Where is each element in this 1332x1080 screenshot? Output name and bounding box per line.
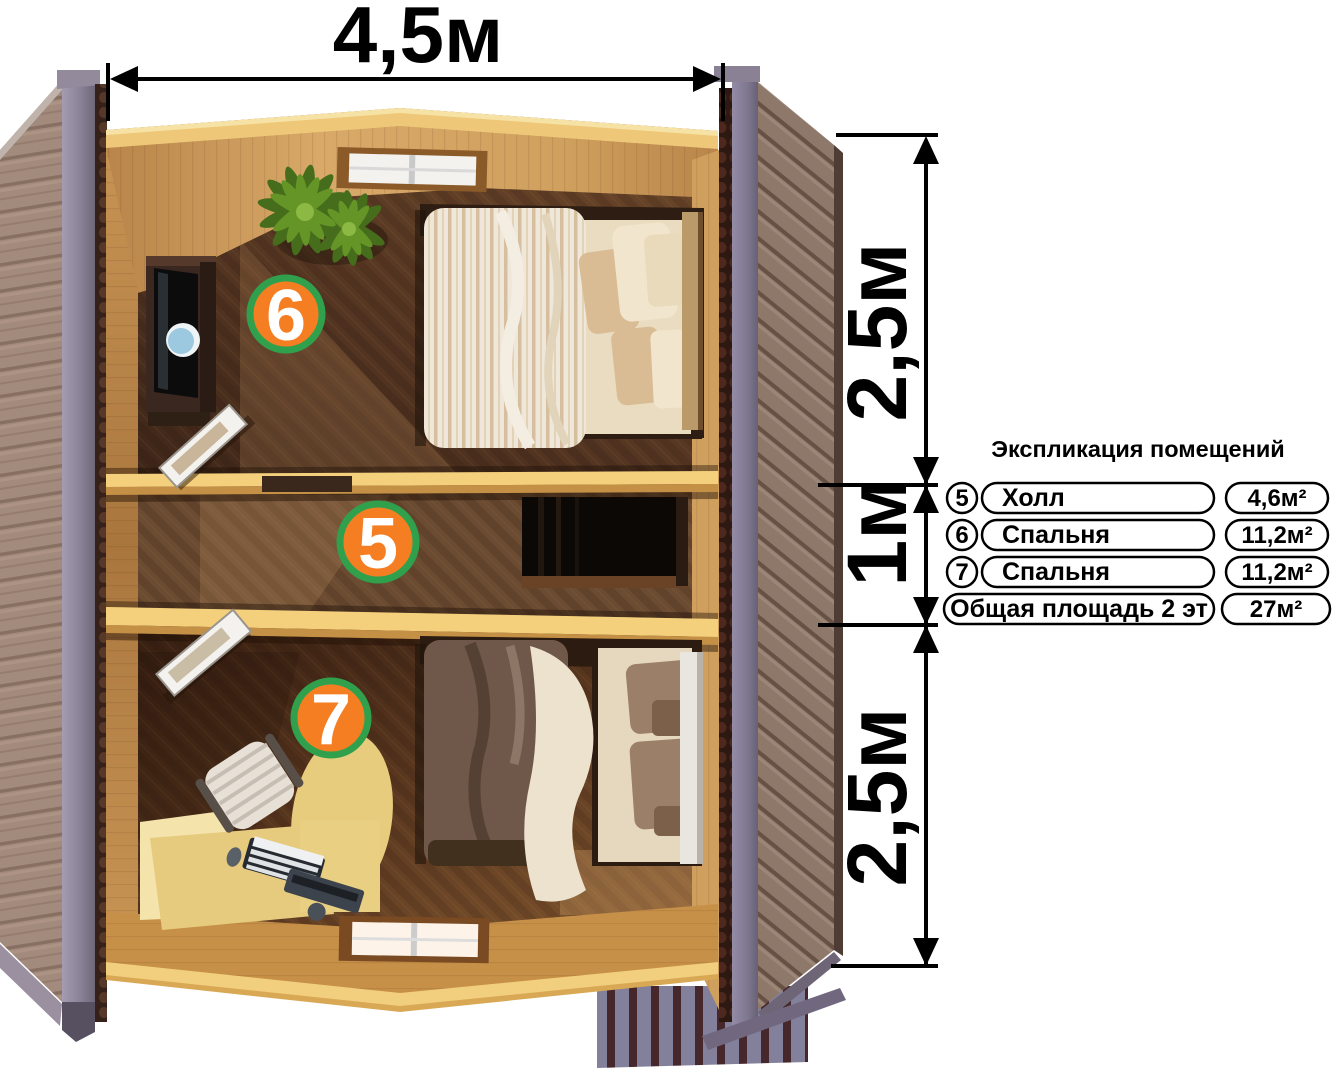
svg-text:1м: 1м (830, 478, 924, 587)
svg-text:7: 7 (311, 680, 351, 760)
svg-text:4,6м²: 4,6м² (1247, 485, 1306, 512)
svg-text:Общая площадь 2 эт: Общая площадь 2 эт (950, 595, 1208, 623)
svg-text:5: 5 (955, 485, 968, 512)
svg-text:Спальня: Спальня (1002, 521, 1110, 549)
svg-text:4,5м: 4,5м (333, 0, 503, 79)
svg-text:Спальня: Спальня (1002, 558, 1110, 586)
svg-text:Экспликация помещений: Экспликация помещений (991, 436, 1284, 462)
svg-text:27м²: 27м² (1250, 596, 1302, 623)
svg-text:11,2м²: 11,2м² (1241, 522, 1312, 549)
svg-text:5: 5 (358, 504, 398, 584)
svg-text:Холл: Холл (1002, 484, 1065, 512)
svg-text:2,5м: 2,5м (830, 243, 924, 422)
svg-text:6: 6 (266, 276, 306, 356)
svg-text:6: 6 (955, 522, 968, 549)
svg-text:11,2м²: 11,2м² (1241, 559, 1312, 586)
svg-text:7: 7 (955, 559, 968, 586)
svg-text:2,5м: 2,5м (830, 708, 924, 887)
